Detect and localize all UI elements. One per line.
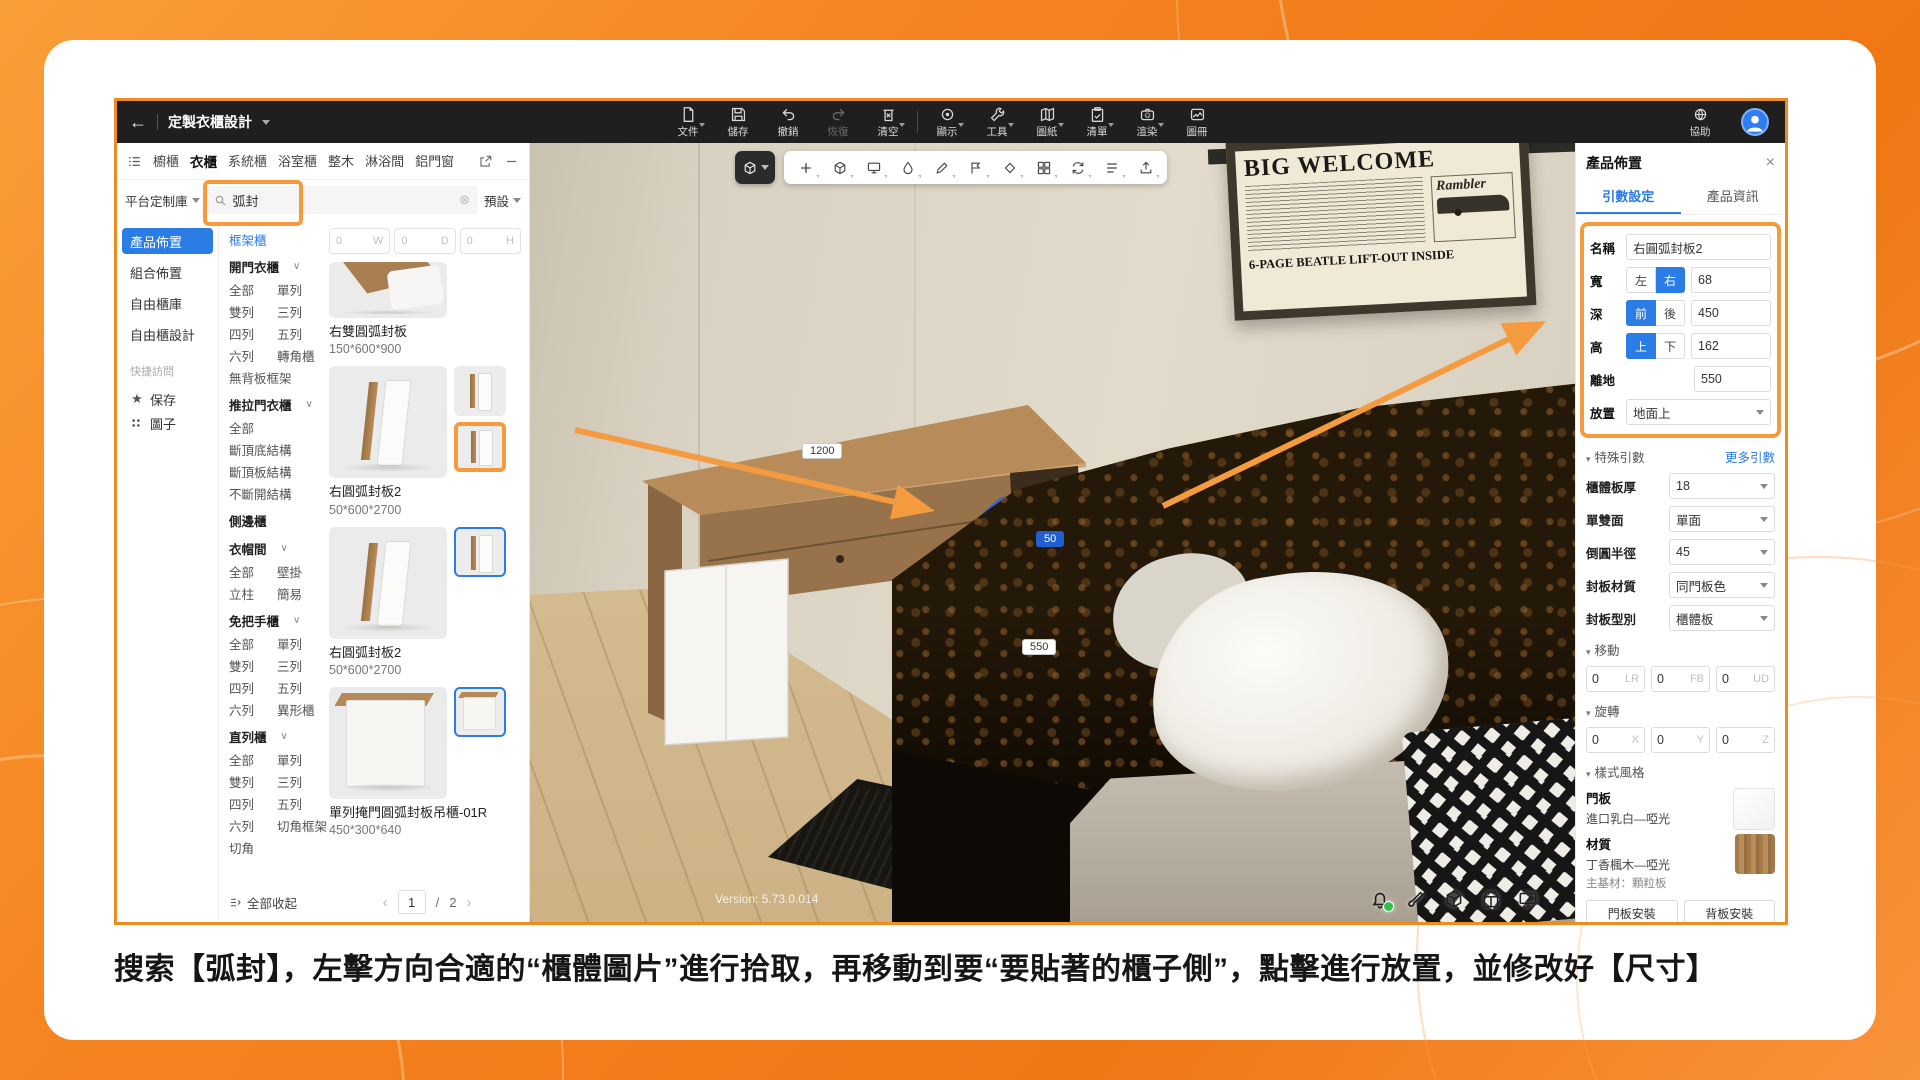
category-row[interactable]: 直列櫃∨ (229, 724, 325, 748)
nav-item[interactable]: 組合佈置 (122, 259, 213, 285)
category-item[interactable]: 免把手櫃 (229, 611, 279, 630)
replace-tool[interactable] (1061, 154, 1094, 181)
paint-tool[interactable] (891, 154, 924, 181)
drawings-button[interactable]: 圖紙 (1022, 103, 1072, 141)
style-section[interactable]: ▾樣式風格 (1586, 762, 1645, 781)
dimension-label-offground: 550 (1022, 639, 1056, 655)
category-row[interactable]: 免把手櫃∨ (229, 608, 325, 632)
category-item[interactable]: 雙列 (229, 656, 277, 675)
width-left-toggle[interactable]: 左 (1626, 267, 1656, 293)
category-row[interactable]: 全部單列∨ (229, 748, 325, 770)
material-style-row[interactable]: 材質 丁香楓木—啞光 主基材：顆粒板 (1586, 834, 1775, 891)
category-row[interactable]: 六列切角框架∨ (229, 814, 325, 836)
special-param-select[interactable]: 45 (1669, 539, 1775, 565)
tutorial-highlight-params: 名稱 右圓弧封板2 寬 左 右 68 深 前 後 (1580, 222, 1781, 438)
brush-icon[interactable] (1406, 888, 1428, 910)
layout-tool[interactable] (1027, 154, 1060, 181)
pen-tool[interactable] (925, 154, 958, 181)
screen-tool[interactable] (857, 154, 890, 181)
catalog-tab[interactable]: 系統櫃 (228, 151, 267, 171)
undo-button[interactable]: 撤銷 (763, 103, 813, 141)
category-row[interactable]: 雙列三列∨ (229, 770, 325, 792)
product-dims: 450*300*640 (329, 823, 521, 837)
rotate-input[interactable]: 0Y (1651, 727, 1710, 753)
product-dims: 50*600*2700 (329, 663, 521, 677)
product-card[interactable]: 單列掩門圓弧封板吊櫃-01R 450*300*640 (329, 687, 521, 837)
special-param-row: 封板型別 櫃體板 (1586, 605, 1775, 631)
catalog-tab[interactable]: 衣櫃 (190, 151, 217, 171)
undo-icon (780, 106, 797, 123)
category-row[interactable]: 全部∨ (229, 416, 325, 438)
wrench-icon (989, 106, 1006, 123)
category-item[interactable]: 不斷開結構 (229, 484, 277, 503)
door-swatch[interactable] (1733, 788, 1775, 830)
category-item[interactable]: 簡易 (277, 584, 325, 603)
divider (157, 114, 158, 130)
catalog-panel: 櫥櫃衣櫃系統櫃浴室櫃整木淋浴間鋁門窗 平台定制庫 弧封 ⊗ 預設 (117, 143, 530, 922)
special-param-select[interactable]: 18 (1669, 473, 1775, 499)
move-input[interactable]: 0UD (1716, 666, 1775, 692)
category-item[interactable]: 轉角櫃 (277, 346, 325, 365)
product-name: 右圓弧封板2 (329, 484, 521, 500)
door-label: 門板 (1586, 788, 1670, 807)
category-item[interactable]: 斷頂底結構 (229, 440, 277, 459)
saved-item[interactable]: ★ 保存 (122, 387, 213, 411)
catalog-tab[interactable]: 櫥櫃 (153, 151, 179, 171)
special-param-select[interactable]: 櫃體板 (1669, 605, 1775, 631)
category-row[interactable]: 四列五列∨ (229, 792, 325, 814)
product-card[interactable]: 右雙圓弧封板 150*600*900 (329, 262, 521, 356)
tutorial-caption: 搜索【弧封】，左擊方向合適的“櫃體圖片”進行拾取，再移動到要“要貼著的櫃子側”，… (114, 944, 1794, 988)
param-label: 寬 (1590, 271, 1626, 290)
clear-button[interactable]: 清空 (863, 103, 913, 141)
category-item[interactable]: 五列 (277, 794, 325, 813)
panel-tabs: 引數設定產品資訊 (1576, 180, 1785, 215)
category-row[interactable]: 全部單列∨ (229, 278, 325, 300)
framed-poster: BIG WELCOME Rambler 6-PAGE BEATLE LIFT-O… (1226, 143, 1537, 321)
category-item[interactable]: 全部 (229, 562, 277, 581)
category-item[interactable]: 六列 (229, 700, 277, 719)
door-value: 進口乳白—啞光 (1586, 810, 1670, 827)
catalog-tab[interactable]: 整木 (328, 151, 354, 171)
nav-item[interactable]: 自由櫃設計 (122, 321, 213, 347)
height-up-toggle[interactable]: 上 (1626, 333, 1656, 359)
size-filter-input[interactable]: 0H (460, 228, 521, 254)
category-item[interactable]: 四列 (229, 794, 277, 813)
display-button[interactable]: 顯示 (922, 103, 972, 141)
avatar-person-icon (1743, 110, 1767, 134)
poster-text-lines (1245, 177, 1426, 252)
file-icon (680, 106, 697, 123)
depth-front-toggle[interactable]: 前 (1626, 300, 1656, 326)
circle-item[interactable]: 圖子 (122, 411, 213, 435)
catalog-tab[interactable]: 鋁門窗 (415, 151, 454, 171)
category-item[interactable]: 全部 (229, 418, 277, 437)
tools-button[interactable]: 工具 (972, 103, 1022, 141)
material-swatch[interactable] (1735, 834, 1775, 874)
height-down-toggle[interactable]: 下 (1656, 333, 1685, 359)
category-item[interactable]: 三列 (277, 656, 325, 675)
clipboard-check-icon (1089, 106, 1106, 123)
category-item[interactable]: 五列 (277, 678, 325, 697)
special-param-row: 櫃體板厚 18 (1586, 473, 1775, 499)
product-card[interactable]: 右圓弧封板2 50*600*2700 (329, 366, 521, 516)
chevron-down-icon: ∨ (306, 399, 313, 410)
size-filters: 0W0D0H (329, 228, 521, 254)
catalog-tab[interactable]: 淋浴間 (365, 151, 404, 171)
category-item[interactable]: 全部 (229, 634, 277, 653)
toolbar-divider (917, 111, 918, 133)
category-row[interactable]: 雙列三列∨ (229, 300, 325, 322)
product-image[interactable] (329, 366, 447, 478)
panel-title: 產品佈置 (1586, 153, 1642, 173)
catalog-nav: 產品佈置組合佈置自由櫃庫自由櫃設計 快捷訪問 ★ 保存 圖子 (117, 220, 219, 922)
product-dims: 150*600*900 (329, 342, 521, 356)
file-button[interactable]: 文件 (663, 103, 713, 141)
app-title: 定製衣櫃設計 (168, 112, 252, 132)
move-input[interactable]: 0FB (1651, 666, 1710, 692)
special-param-select[interactable]: 同門板色 (1669, 572, 1775, 598)
category-row[interactable]: 立柱簡易∨ (229, 582, 325, 604)
grid-dots-icon (130, 417, 144, 429)
move-fields: 0LR0FB0UD (1586, 666, 1775, 692)
title-dropdown-icon[interactable] (262, 120, 270, 125)
special-param-select[interactable]: 單面 (1669, 506, 1775, 532)
product-dims: 50*600*2700 (329, 503, 521, 517)
category-item[interactable]: 直列櫃 (229, 727, 267, 746)
list-button[interactable]: 清單 (1072, 103, 1122, 141)
special-param-label: 倒圓半徑 (1586, 543, 1636, 562)
dimension-label-thickness: 50 (1036, 531, 1064, 547)
category-item[interactable]: 三列 (277, 302, 325, 321)
category-item[interactable]: 衣帽間 (229, 539, 267, 558)
erase-tool[interactable] (993, 154, 1026, 181)
nav-item[interactable]: 自由櫃庫 (122, 290, 213, 316)
category-item[interactable]: 側邊櫃 (229, 511, 267, 530)
app-window: ← 定製衣櫃設計 文件 儲存 撤銷 (114, 98, 1788, 925)
category-column: 框架櫃∨ 開門衣櫃∨ 全部單列∨ 雙列三列∨ (219, 220, 325, 922)
preset-select[interactable]: 預設 (484, 191, 521, 210)
page-next-button[interactable]: › (466, 894, 471, 911)
special-param-label: 櫃體板厚 (1586, 477, 1636, 496)
product-image[interactable] (329, 687, 447, 799)
product-column: 0W0D0H 右雙圓弧封板 150*600*900 (325, 220, 529, 922)
rotate-input[interactable]: 0X (1586, 727, 1645, 753)
model-tool[interactable] (823, 154, 856, 181)
material-value: 丁香楓木—啞光 (1586, 856, 1670, 873)
category-item[interactable]: 全部 (229, 280, 277, 299)
depth-input[interactable]: 450 (1691, 300, 1771, 326)
rotate-input[interactable]: 0Z (1716, 727, 1775, 753)
rotate-fields: 0X0Y0Z (1586, 727, 1775, 753)
category-item[interactable]: 五列 (277, 324, 325, 343)
clear-icon (880, 106, 897, 123)
category-item[interactable]: 開門衣櫃 (229, 257, 279, 276)
category-item[interactable]: 切角框架 (277, 816, 325, 835)
nav-item[interactable]: 產品佈置 (122, 228, 213, 254)
category-item[interactable]: 斷頂板結構 (229, 462, 277, 481)
category-item[interactable]: 單列 (277, 634, 325, 653)
search-row: 平台定制庫 弧封 ⊗ 預設 (117, 180, 529, 220)
category-item[interactable]: 六列 (229, 816, 277, 835)
category-row[interactable]: 側邊櫃∨ (229, 508, 325, 532)
product-card[interactable]: 右圓弧封板2 50*600*2700 (329, 527, 521, 677)
panel-tab[interactable]: 引數設定 (1576, 180, 1681, 214)
category-row[interactable]: 衣帽間∨ (229, 536, 325, 560)
globe-icon (1692, 106, 1709, 123)
special-param-label: 封板材質 (1586, 576, 1636, 595)
category-item[interactable]: 四列 (229, 678, 277, 697)
category-row[interactable]: 斷頂板結構∨ (229, 460, 325, 482)
category-item[interactable]: 單列 (277, 280, 325, 299)
action-button[interactable]: 門板安裝 (1586, 900, 1678, 922)
placement-select[interactable]: 地面上 (1626, 399, 1771, 425)
category-item[interactable]: 框架櫃 (229, 230, 277, 249)
save-icon (730, 106, 747, 123)
main-toolbar: 文件 儲存 撤銷 恢復 清空 (663, 103, 1222, 141)
category-item[interactable]: 三列 (277, 772, 325, 791)
name-input[interactable]: 右圓弧封板2 (1626, 234, 1771, 260)
height-input[interactable]: 162 (1691, 333, 1771, 359)
category-item[interactable]: 四列 (229, 324, 277, 343)
list-tool[interactable] (1095, 154, 1128, 181)
size-filter-input[interactable]: 0D (394, 228, 455, 254)
version-watermark: Version: 5.73.0.014 (715, 892, 818, 906)
category-row[interactable]: 四列五列∨ (229, 322, 325, 344)
width-input[interactable]: 68 (1691, 267, 1771, 293)
category-row[interactable]: 全部單列∨ (229, 632, 325, 654)
view-mode-button[interactable] (735, 151, 775, 184)
width-right-toggle[interactable]: 右 (1656, 267, 1685, 293)
product-image[interactable] (329, 262, 447, 318)
offground-input[interactable]: 550 (1694, 366, 1771, 392)
special-params-section[interactable]: ▾特殊引數 (1586, 447, 1645, 466)
back-button[interactable]: ← (129, 112, 147, 133)
param-label: 名稱 (1590, 238, 1626, 257)
cube-icon[interactable] (1443, 888, 1465, 910)
special-param-row: 封板材質 同門板色 (1586, 572, 1775, 598)
param-label: 離地 (1590, 370, 1626, 389)
search-input[interactable]: 弧封 ⊗ (206, 186, 478, 214)
export-tool[interactable] (1129, 154, 1162, 181)
category-row[interactable]: 雙列三列∨ (229, 654, 325, 676)
viewport-tool-strip (784, 151, 1167, 184)
viewport-toolbar (735, 151, 1167, 184)
category-row[interactable]: 推拉門衣櫃∨ (229, 392, 325, 416)
package-icon[interactable] (1480, 888, 1502, 910)
category-item[interactable]: 全部 (229, 750, 277, 769)
category-item[interactable]: 切角 (229, 838, 277, 857)
car-illustration (1437, 194, 1510, 214)
dimension-label-width: 1200 (802, 443, 842, 459)
variant-thumbnail-selected-blue[interactable] (454, 687, 506, 737)
popout-icon[interactable] (478, 154, 493, 169)
add-tool[interactable] (789, 154, 822, 181)
flag-tool[interactable] (959, 154, 992, 181)
category-item[interactable]: 單列 (277, 750, 325, 769)
collapse-icon (229, 896, 242, 909)
special-param-row: 單雙面 單面 (1586, 506, 1775, 532)
category-row[interactable]: 無背板框架∨ (229, 366, 325, 388)
album-button[interactable]: 圖冊 (1172, 103, 1222, 141)
map-icon (1039, 106, 1056, 123)
panel-tab[interactable]: 產品資訊 (1681, 180, 1786, 214)
category-row[interactable]: 不斷開結構∨ (229, 482, 325, 504)
tutorial-slide: ← 定製衣櫃設計 文件 儲存 撤銷 (0, 0, 1920, 1080)
depth-back-toggle[interactable]: 後 (1656, 300, 1685, 326)
variant-thumbnail-selected-orange[interactable] (454, 422, 506, 472)
minimize-icon[interactable] (504, 154, 519, 169)
redo-icon (830, 106, 847, 123)
page-total: 2 (449, 895, 456, 910)
redo-button: 恢復 (813, 103, 863, 141)
category-item[interactable]: 六列 (229, 346, 277, 365)
action-button[interactable]: 背板安裝 (1684, 900, 1776, 922)
collapse-all-button[interactable]: 全部收起 (229, 893, 297, 912)
search-clear-icon[interactable]: ⊗ (459, 192, 470, 208)
green-status-dot (1383, 901, 1394, 912)
library-select[interactable]: 平台定制庫 (125, 191, 200, 210)
cube-icon (742, 160, 758, 176)
move-section[interactable]: ▾移動 (1586, 640, 1620, 659)
action-buttons: 門板安裝 背板安裝 抽屜安裝 拉伸改尺 (1586, 900, 1775, 922)
category-item[interactable]: 異形櫃 (277, 700, 325, 719)
special-param-label: 單雙面 (1586, 510, 1624, 529)
param-label: 深 (1590, 304, 1626, 323)
viewport-3d[interactable]: BIG WELCOME Rambler 6-PAGE BEATLE LIFT-O… (530, 143, 1575, 922)
size-filter-input[interactable]: 0W (329, 228, 390, 254)
chevron-down-icon: ∨ (281, 731, 288, 742)
chevron-down-icon: ∨ (293, 615, 300, 626)
save-button[interactable]: 儲存 (713, 103, 763, 141)
category-item[interactable]: 雙列 (229, 302, 277, 321)
category-row[interactable]: 框架櫃∨ (229, 228, 325, 250)
category-row[interactable]: 切角∨ (229, 836, 325, 858)
category-row[interactable]: 六列異形櫃∨ (229, 698, 325, 720)
category-item[interactable]: 雙列 (229, 772, 277, 791)
param-label: 放置 (1590, 403, 1626, 422)
assist-button[interactable]: 協助 (1677, 103, 1723, 141)
search-value: 弧封 (233, 191, 259, 210)
category-row[interactable]: 六列轉角櫃∨ (229, 344, 325, 366)
camera-icon (1139, 106, 1156, 123)
category-row[interactable]: 斷頂底結構∨ (229, 438, 325, 460)
catalog-tab[interactable]: 浴室櫃 (278, 151, 317, 171)
close-icon[interactable]: × (1766, 154, 1775, 172)
special-param-row: 倒圓半徑 45 (1586, 539, 1775, 565)
door-style-row[interactable]: 門板 進口乳白—啞光 (1586, 788, 1775, 830)
product-name: 右圓弧封板2 (329, 645, 521, 661)
chevron-down-icon: ∨ (281, 543, 288, 554)
page-prev-button[interactable]: ‹ (383, 894, 388, 911)
page-current[interactable]: 1 (398, 890, 426, 914)
param-label: 高 (1590, 337, 1626, 356)
base-material: 主基材：顆粒板 (1586, 875, 1670, 891)
more-params-link[interactable]: 更多引數 (1725, 447, 1775, 466)
product-name: 單列掩門圓弧封板吊櫃-01R (329, 805, 521, 821)
special-param-label: 封板型別 (1586, 609, 1636, 628)
properties-panel: 產品佈置 × 引數設定產品資訊 名稱 右圓弧封板2 寬 左 右 68 (1575, 143, 1785, 922)
user-avatar[interactable] (1741, 108, 1769, 136)
category-row[interactable]: 全部壁掛∨ (229, 560, 325, 582)
category-row[interactable]: 開門衣櫃∨ (229, 254, 325, 278)
rotate-section[interactable]: ▾旋轉 (1586, 701, 1620, 720)
search-icon (214, 194, 227, 207)
app-header: ← 定製衣櫃設計 文件 儲存 撤銷 (117, 101, 1785, 143)
catalog-tabs: 櫥櫃衣櫃系統櫃浴室櫃整木淋浴間鋁門窗 (117, 143, 529, 180)
display-icon (939, 106, 956, 123)
variant-thumbnail[interactable] (454, 366, 506, 416)
render-button[interactable]: 渲染 (1122, 103, 1172, 141)
product-name: 右雙圓弧封板 (329, 324, 521, 340)
category-item[interactable]: 推拉門衣櫃 (229, 395, 292, 414)
notification-bell-icon[interactable] (1369, 888, 1391, 910)
move-input[interactable]: 0LR (1586, 666, 1645, 692)
poster-car-ad: Rambler (1431, 172, 1516, 242)
quick-access-title: 快捷訪問 (130, 363, 213, 379)
category-row[interactable]: 四列五列∨ (229, 676, 325, 698)
pagination: ‹ 1 / 2 › (325, 890, 529, 914)
category-item[interactable]: 立柱 (229, 584, 277, 603)
material-label: 材質 (1586, 834, 1670, 853)
product-image[interactable] (329, 527, 447, 639)
album-icon (1189, 106, 1206, 123)
viewport-bottom-icons (1369, 888, 1539, 910)
category-item[interactable]: 壁掛 (277, 562, 325, 581)
monitor-icon[interactable] (1517, 888, 1539, 910)
category-item[interactable]: 無背板框架 (229, 368, 277, 387)
variant-thumbnail-selected-blue[interactable] (454, 527, 506, 577)
chevron-down-icon: ∨ (293, 261, 300, 272)
star-icon: ★ (130, 391, 144, 407)
menu-icon[interactable] (127, 154, 142, 169)
